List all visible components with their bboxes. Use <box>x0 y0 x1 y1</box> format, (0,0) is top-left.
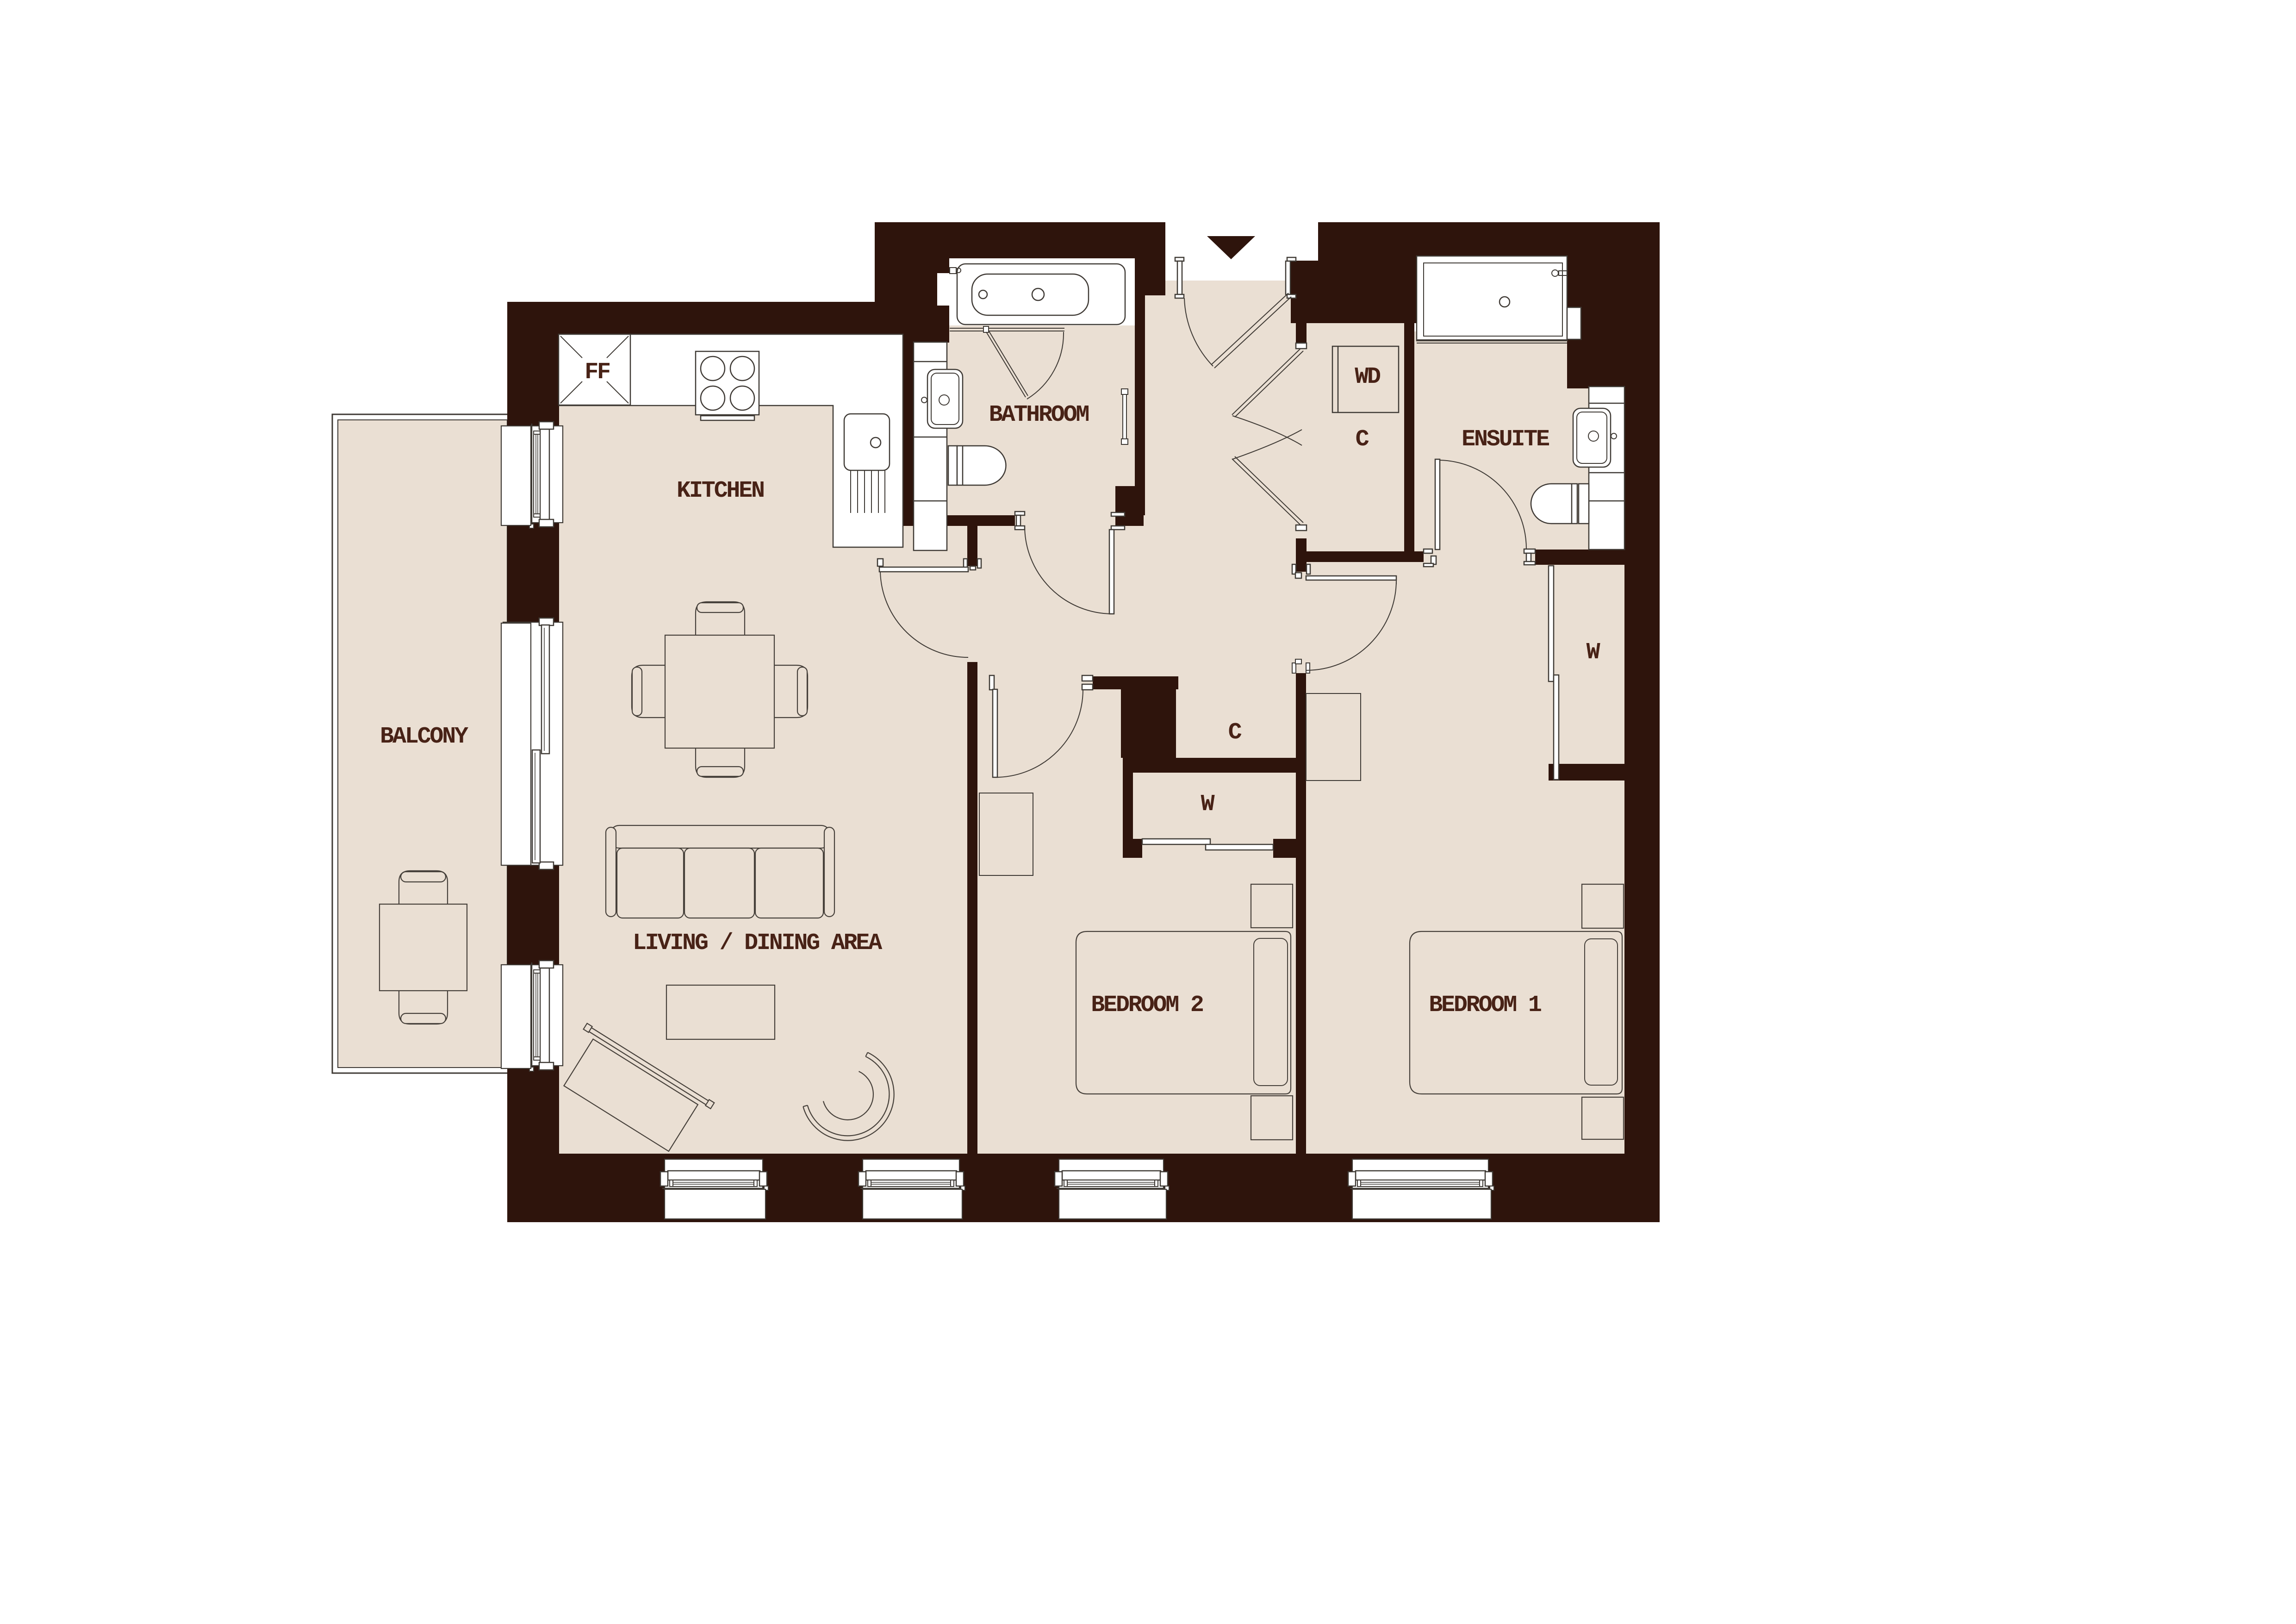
svg-text:FF: FF <box>585 359 610 386</box>
svg-text:KITCHEN: KITCHEN <box>677 478 764 504</box>
svg-text:BATHROOM: BATHROOM <box>989 402 1089 428</box>
svg-text:WD: WD <box>1355 364 1381 390</box>
svg-text:ENSUITE: ENSUITE <box>1462 426 1549 453</box>
svg-text:W: W <box>1201 791 1215 818</box>
svg-text:C: C <box>1356 426 1369 453</box>
svg-text:BEDROOM 2: BEDROOM 2 <box>1091 992 1203 1018</box>
svg-text:W: W <box>1587 639 1600 666</box>
svg-text:LIVING / DINING AREA: LIVING / DINING AREA <box>633 930 882 956</box>
svg-text:C: C <box>1228 719 1242 746</box>
svg-text:BALCONY: BALCONY <box>380 724 468 750</box>
svg-text:BEDROOM 1: BEDROOM 1 <box>1429 992 1541 1018</box>
